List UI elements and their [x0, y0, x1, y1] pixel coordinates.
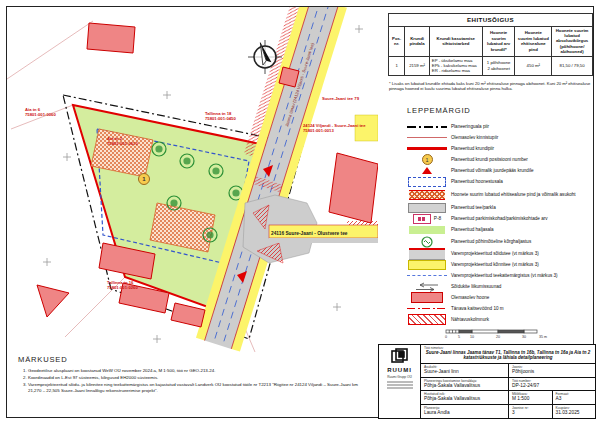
legend-label: Planeeritud põhimõtteline kõrghaljastus — [451, 239, 531, 245]
legend-label: Planeeritud tee/parkla — [451, 205, 496, 211]
svg-text:75801:001:0060: 75801:001:0060 — [25, 112, 56, 117]
company-subname: Ruumi Grupp OÜ — [387, 375, 412, 379]
yellow-rect-swatch — [408, 260, 446, 270]
legend-label: Olemasolev kinnistupiir — [451, 135, 498, 141]
legend-label: Varemprojekteeritud teekattemärgistus (v… — [451, 273, 558, 279]
orange-hatch-swatch — [409, 190, 445, 200]
legend-item-green-area: Planeeritud haljasala — [403, 224, 593, 235]
thin-red-line-swatch — [407, 137, 447, 138]
format-cell: Formaat: A3 — [553, 391, 596, 404]
company-name: RUUMI — [387, 367, 412, 373]
scale-cell: Mõõtkava: M 1:500 — [509, 391, 553, 404]
legend-item-parking-count: P-8 Planeeritud parkimiskohad/parkimisko… — [403, 213, 593, 224]
parking-icon — [413, 214, 431, 224]
work-number-cell: Töö number: DP-12-24/97 — [509, 378, 595, 392]
dashdot-line-swatch — [407, 126, 447, 128]
note-item: Varemprojekteeritud sõidu- ja kõnnitee n… — [28, 382, 370, 394]
blue-dashed-line-swatch — [407, 275, 447, 276]
site-plan-map: 1 Jaama tänav (24124 Viljandi - Suure-Ja… — [7, 7, 378, 352]
building-rights-table: EHITUSÕIGUS Pos. nr. Krundi pindala Krun… — [388, 13, 593, 76]
legend-label: Tänava kaitsevöönd 10 m — [451, 306, 504, 312]
svg-text:75801:001:0260: 75801:001:0260 — [107, 285, 138, 290]
legend-label: Planeeritud võimalik juurdepääs krundile — [451, 168, 533, 174]
parking-sample-text: P-8 — [434, 216, 441, 221]
legend-item-traffic-directions: Sõidukite liikumissuunad — [403, 281, 593, 292]
drawing-name-cell: Joonis: Põhijoonis — [509, 364, 595, 378]
table-title: EHITUSÕIGUS — [389, 14, 593, 27]
legend-item-road-markings: Varemprojekteeritud teekattemärgistus (v… — [403, 270, 593, 281]
legend-label: Planeeritud haljasala — [451, 227, 494, 233]
label-tee-79: Suure-Jaani tee 79 — [322, 96, 360, 101]
legend-item-road-parking: Planeeritud tee/parkla — [403, 202, 593, 213]
interested-party-cell: Huvitatud isik: Põhja-Sakala Vallavalits… — [421, 391, 509, 405]
legend-label: Olemasolev hoone — [451, 295, 489, 301]
legend-title: LEPPEMÄRGID — [407, 106, 593, 115]
legend-label: Sõidukite liikumissuunad — [451, 284, 501, 290]
legend-item-planning-boundary: Planeeringuala piir — [403, 121, 593, 132]
red-dashdot-swatch — [407, 308, 447, 310]
scale-bar: 0 5 10 20 30 35 m — [436, 326, 592, 342]
svg-text:20: 20 — [496, 335, 500, 339]
blue-dashed-rect-swatch — [408, 177, 446, 187]
svg-text:75801:001:0450: 75801:001:0450 — [205, 116, 236, 121]
table-footnote: * Lisaks on lubatud krundile ehitada kak… — [389, 81, 593, 92]
title-block: RUUMI Ruumi Grupp OÜ Töö nimetus: Suure-… — [378, 344, 596, 419]
legend-label: Planeeritud hoonestusala — [451, 179, 503, 185]
legend-item-position-number: 1 Planeeritud krundi positsiooni number — [403, 154, 593, 165]
red-building-swatch — [411, 292, 443, 303]
svg-text:0: 0 — [445, 335, 447, 339]
legend-item-existing-building: Olemasolev hoone — [403, 292, 593, 303]
table-row: 1 2159 m² EP - üksikelamu maa EPk - kaks… — [389, 56, 593, 75]
note-item: Koordinaadid on L-Est 97 süsteemis, kõrg… — [28, 375, 370, 381]
svg-text:75801:001:0013: 75801:001:0013 — [303, 128, 334, 133]
legend-label: Varemprojekteeritud sõidutee (vt märkus … — [451, 251, 539, 257]
legend-label: Planeeritud krundi positsiooni number — [451, 157, 528, 163]
legend-label: Planeeritud krundipiir — [451, 146, 494, 152]
red-hatch-swatch — [408, 314, 446, 325]
legend-label: Varemprojekteeritud kõnnitee (vt märkus … — [451, 262, 539, 268]
branch-road-label: 24116 Suure-Jaani - Olustvere tee — [271, 231, 348, 236]
legend-item-existing-property-line: Olemasolev kinnistupiir — [403, 132, 593, 143]
svg-text:30: 30 — [522, 335, 526, 339]
gray-rect-swatch — [408, 203, 446, 213]
traffic-arrows-icon — [414, 282, 440, 292]
table-header-row: Pos. nr. Krundi pindala Krundi kasutamis… — [389, 26, 593, 56]
prev-road-swatch — [409, 248, 445, 260]
project-title: Suure-Jaani linnas Jaama tänav T1, Talli… — [424, 350, 592, 361]
legend-item-visibility-triangle: Nähtavuskolmnurk — [403, 314, 593, 325]
legend-item-building-zone: Planeeritud hoonestusala — [403, 176, 593, 187]
svg-text:5: 5 — [458, 335, 460, 339]
logo-squares-icon — [390, 348, 410, 366]
legend-item-access: Planeeritud võimalik juurdepääs krundile — [403, 165, 593, 176]
notes-section: MÄRKUSED Geodeetilise alusplaani on koos… — [18, 355, 370, 396]
legend-label: Nähtavuskolmnurk — [451, 317, 489, 323]
legend-item-prev-sidewalk: Varemprojekteeritud kõnnitee (vt märkus … — [403, 259, 593, 270]
legend-item-building-footprint: Hoonete suurim lubatud ehitisealune pind… — [403, 187, 593, 202]
position-number-swatch: 1 — [422, 154, 433, 165]
legend-label: Hoonete suurim lubatud ehitisealune pind… — [451, 192, 576, 198]
company-contact-lines — [387, 381, 413, 390]
legend-label: Planeeringuala piir — [451, 124, 489, 130]
svg-text:35 m: 35 m — [539, 335, 547, 339]
legend-item-prev-road: Varemprojekteeritud sõidutee (vt märkus … — [403, 248, 593, 259]
company-logo: RUUMI Ruumi Grupp OÜ — [379, 345, 421, 418]
organizer-cell: Planeeringu koostamise korraldaja: Põhja… — [421, 378, 509, 392]
note-item: Geodeetilise alusplaani on koostanud WeW… — [28, 368, 370, 374]
green-rect-swatch — [409, 226, 445, 234]
date-cell: Kuupäev: 31.03.2025 — [553, 405, 596, 419]
sheet-number-cell: Joonise nr: 3 — [509, 405, 553, 419]
access-triangle-swatch — [422, 167, 432, 174]
svg-text:10: 10 — [470, 335, 474, 339]
thick-red-line-swatch — [407, 147, 447, 150]
legend-item-protection-zone: Tänava kaitsevöönd 10 m — [403, 303, 593, 314]
plan-sheet: 1 Jaama tänav (24124 Viljandi - Suure-Ja… — [0, 0, 600, 423]
legend-label: Planeeritud parkimiskohad/parkimiskohtad… — [451, 216, 548, 222]
legend-item-plot-boundary: Planeeritud krundipiir — [403, 143, 593, 154]
project-title-cell: Töö nimetus: Suure-Jaani linnas Jaama tä… — [421, 345, 595, 364]
location-cell: Asukoht: Suure-Jaani linn — [421, 364, 509, 378]
plot-position-number: 1 — [139, 174, 150, 185]
tree-icon — [421, 236, 433, 248]
svg-text:75801:001:0610: 75801:001:0610 — [107, 141, 138, 146]
notes-title: MÄRKUSED — [18, 355, 370, 364]
planner-cell: Planeerija: Laura Andla — [421, 405, 509, 419]
sidewalk-patch — [355, 115, 378, 141]
legend-item-tall-greenery: Planeeritud põhimõtteline kõrghaljastus — [403, 235, 593, 248]
legend: LEPPEMÄRGID Planeeringuala piir Olemasol… — [403, 106, 593, 325]
